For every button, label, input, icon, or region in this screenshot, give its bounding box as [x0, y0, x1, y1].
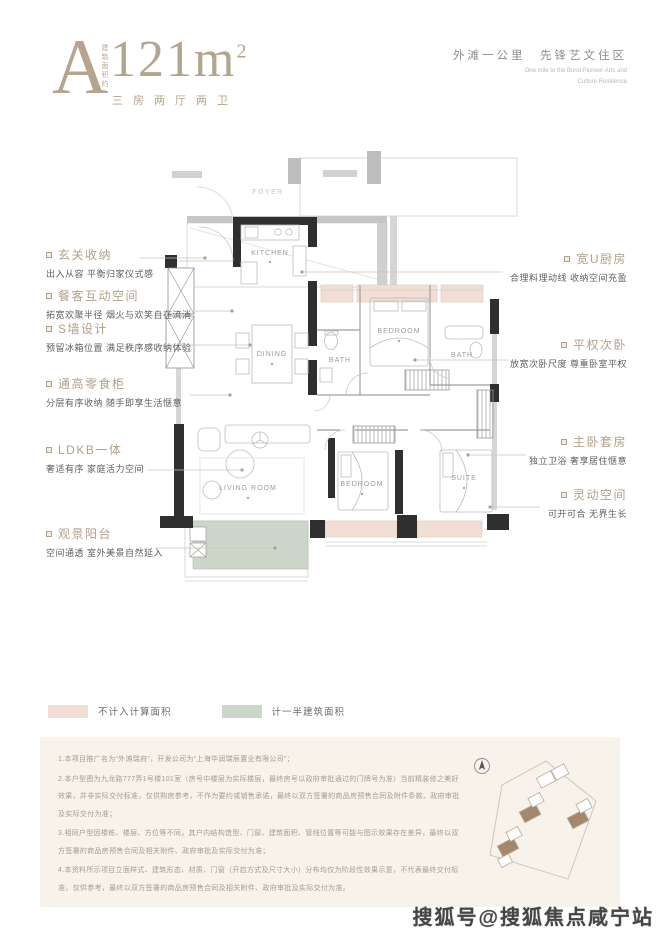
square-bullet-icon — [561, 439, 567, 445]
annotation-title: LDKB一体 — [58, 441, 122, 458]
annotation-desc: 独立卫浴 奢享居住惬意 — [437, 454, 627, 467]
legend: 不计入计算面积 计一半建筑面积 — [48, 704, 345, 718]
annotation-title: 灵动空间 — [573, 486, 627, 503]
annotation-ldkb: LDKB一体 奢适有序 家庭活力空间 — [46, 441, 236, 475]
annotation-desc: 空间通透 室外美景自然延入 — [46, 546, 236, 559]
annotation-desc: 合理料理动线 收纳空间充盈 — [437, 271, 627, 284]
square-bullet-icon — [46, 293, 52, 299]
annotation-title: 宽U厨房 — [576, 250, 627, 267]
annotation-dining-interaction: 餐客互动空间 拓宽欢聚半径 烟火与欢笑自在流淌 — [46, 287, 236, 321]
square-bullet-icon — [46, 381, 52, 387]
disclaimer-item: 2.本户型图为九龙路777弄1号楼101室（房号中楼层为实际楼层，最终房号以政府… — [58, 771, 462, 824]
annotation-master-suite: 主卧套房 独立卫浴 奢享居住惬意 — [437, 433, 627, 467]
room-label-kitchen: KITCHEN — [251, 250, 289, 257]
legend-swatch-green — [222, 705, 262, 718]
annotation-u-kitchen: 宽U厨房 合理料理动线 收纳空间充盈 — [437, 250, 627, 284]
disclaimer-item: 4.本资料所示项目立面样式、建筑形态、材质、门窗（开启方式及尺寸大小）分布均仅为… — [58, 862, 462, 897]
annotation-s-wall: S墙设计 预留冰箱位置 满足秩序感收纳体验 — [46, 320, 236, 354]
area-superscript: 2 — [236, 41, 246, 63]
annotation-title: 观景阳台 — [58, 525, 112, 542]
annotation-desc: 预留冰箱位置 满足秩序感收纳体验 — [46, 341, 236, 354]
tagline-en-line2: Culture Residence — [525, 77, 627, 88]
annotation-title: 玄关收纳 — [58, 246, 112, 263]
room-label-bedroom-b: BEDROOM — [340, 481, 383, 488]
square-bullet-icon — [561, 342, 567, 348]
compass-icon — [475, 759, 490, 774]
disclaimer-item: 3.相同户型因楼栋、楼层、方位等不同，其户内结构造型、门窗、建筑面积、管线位置等… — [58, 825, 462, 860]
disclaimer-item: 1.本项目推广名为“外滩瑞府”，开发公司为“上海华润瑞辰置业有限公司”； — [58, 751, 462, 769]
annotation-desc: 放宽次卧尺度 尊重卧室平权 — [437, 357, 627, 370]
legend-label-green: 计一半建筑面积 — [272, 704, 346, 718]
tagline-en-line1: One mile to the Bund Pioneer Arts and — [525, 66, 627, 77]
annotation-desc: 分层有序收纳 随手即享生活惬意 — [46, 396, 236, 409]
legend-label-pink: 不计入计算面积 — [98, 704, 172, 718]
disclaimer-box: 1.本项目推广名为“外滩瑞府”，开发公司为“上海华润瑞辰置业有限公司”； 2.本… — [40, 737, 620, 907]
area-prefix: 建筑面积约 — [99, 44, 109, 89]
annotation-title: 餐客互动空间 — [58, 287, 139, 304]
floorplan-poster: A 建筑面积约 121m2 三房两厅两卫 外滩一公里 先锋艺文住区 One mi… — [0, 0, 660, 939]
square-bullet-icon — [46, 531, 52, 537]
site-buildings — [488, 764, 597, 868]
annotation-title: 通高零食柜 — [58, 375, 126, 392]
annotation-flex-space: 灵动空间 可开可合 无界生长 — [437, 486, 627, 520]
annotation-snack-cabinet: 通高零食柜 分层有序收纳 随手即享生活惬意 — [46, 375, 236, 409]
room-label-foyer: FOYER — [252, 189, 284, 196]
watermark-text: 搜狐号@搜狐焦点咸宁站 — [412, 901, 654, 930]
annotation-entry-storage: 玄关收纳 出入从容 平衡归家仪式感 — [46, 246, 236, 280]
legend-swatch-pink — [48, 705, 88, 718]
annotation-title: 主卧套房 — [573, 433, 627, 450]
annotation-desc: 可开可合 无界生长 — [437, 507, 627, 520]
annotation-desc: 出入从容 平衡归家仪式感 — [46, 267, 236, 280]
site-map — [468, 749, 618, 895]
room-label-living: LIVING ROOM — [219, 485, 277, 492]
square-bullet-icon — [561, 492, 567, 498]
square-bullet-icon — [46, 252, 52, 258]
square-bullet-icon — [46, 447, 52, 453]
wall-opening — [308, 346, 317, 360]
room-label-bedroom-a: BEDROOM — [377, 328, 420, 335]
annotation-title: S墙设计 — [58, 320, 108, 337]
room-label-bath-a: BATH — [329, 357, 351, 364]
annotation-equal-bedroom: 平权次卧 放宽次卧尺度 尊重卧室平权 — [437, 336, 627, 370]
square-bullet-icon — [564, 256, 570, 262]
layout-description: 三房两厅两卫 — [112, 92, 238, 108]
area-number: 121m — [110, 31, 236, 88]
room-label-dining: DINING — [257, 351, 288, 358]
square-bullet-icon — [46, 326, 52, 332]
project-tagline: 外滩一公里 先锋艺文住区 — [453, 47, 627, 63]
annotation-desc: 奢适有序 家庭活力空间 — [46, 462, 236, 475]
annotation-title: 平权次卧 — [573, 336, 627, 353]
room-label-suite: SUITE — [451, 475, 477, 482]
area-value: 121m2 — [110, 34, 246, 86]
disclaimer-text: 1.本项目推广名为“外滩瑞府”，开发公司为“上海华润瑞辰置业有限公司”； 2.本… — [58, 751, 462, 899]
annotation-view-balcony: 观景阳台 空间通透 室外美景自然延入 — [46, 525, 236, 559]
project-tagline-en: One mile to the Bund Pioneer Arts and Cu… — [525, 66, 627, 89]
